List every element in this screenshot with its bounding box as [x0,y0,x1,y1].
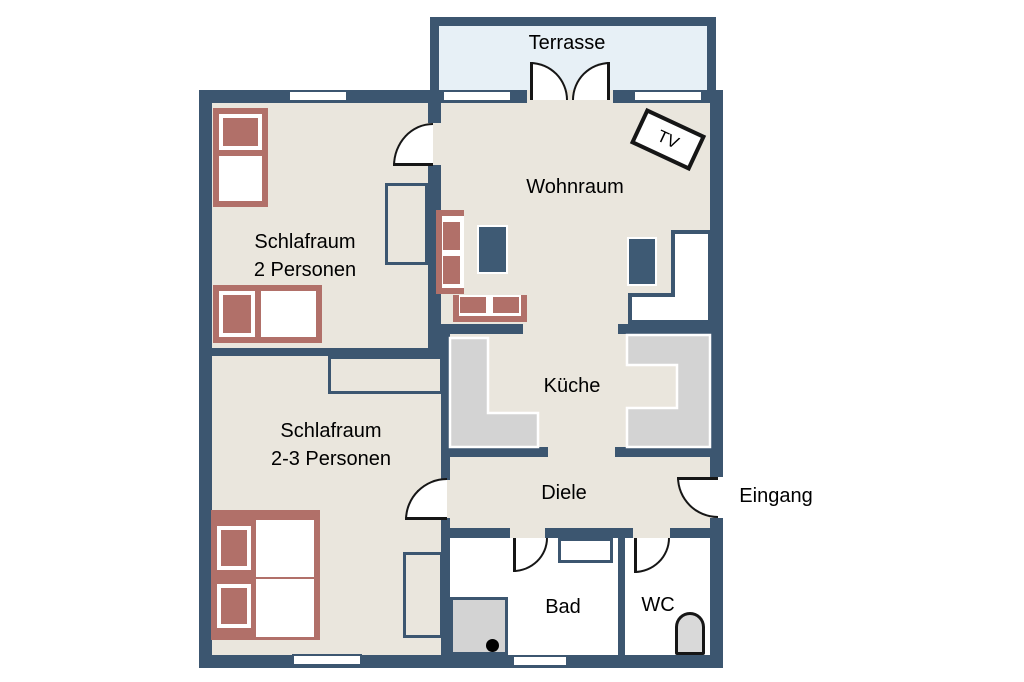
window-schlafraum2 [292,654,362,666]
wardrobe-schlafraum2-top [328,356,443,394]
terrace-wall-top [430,17,716,26]
pillow [217,584,251,628]
shower [450,597,508,655]
wall-bottom [199,655,723,668]
label-bad: Bad [545,593,581,621]
terrace-wall-left [430,17,439,90]
opening-wohnraum-kueche [523,324,618,334]
mattress [261,291,316,337]
sofa-cushion [460,297,486,313]
window-bad [512,655,568,667]
sofa-horizontal [453,295,527,322]
label-terrasse: Terrasse [529,29,606,57]
single-bed-vertical [213,108,268,207]
window-terrasse-right [633,90,703,102]
single-bed-horizontal [213,285,322,343]
label-schlafraum1: Schlafraum 2 Personen [254,228,356,284]
wall-kueche-diele-left [441,447,548,457]
label-schlafraum2-line1: Schlafraum [271,417,391,445]
wall-diele-bad-left [441,528,510,538]
label-wohnraum: Wohnraum [526,173,623,201]
doorway-wc [633,528,670,538]
terrace-wall-right [707,17,716,90]
label-diele: Diele [541,479,587,507]
sofa-cushion [493,297,519,313]
wall-schlafraum1-wohnraum-upper [428,103,441,123]
mattress [256,579,314,637]
sink [558,538,613,563]
wardrobe-schlafraum2-right [403,552,443,638]
mattress [256,520,314,577]
label-schlafraum2: Schlafraum 2-3 Personen [271,417,391,473]
coffee-table [477,225,508,274]
wall-kueche-diele-right [615,447,723,457]
shower-drain-icon [486,639,499,652]
floor-plan: TV Terrasse Wohnraum Schlafraum 2 Person… [0,0,1024,682]
mattress [219,156,262,201]
wall-between-bedrooms [199,348,450,356]
label-kueche: Küche [544,372,601,400]
wall-wohnraum-kueche-left [437,324,523,334]
sofa-cushion [443,222,460,250]
pillow [217,526,251,570]
wardrobe-schlafraum1 [385,183,428,265]
label-schlafraum1-line2: 2 Personen [254,256,356,284]
label-eingang: Eingang [739,482,812,510]
double-bed [211,510,320,640]
wall-diele-bad-mid [545,528,633,538]
label-schlafraum2-line2: 2-3 Personen [271,445,391,473]
wall-right [710,90,723,668]
wall-diele-wc-right [670,528,723,538]
window-schlafraum1 [288,90,348,102]
window-terrasse-left [442,90,512,102]
sofa-cushion [443,256,460,284]
pillow [219,291,255,337]
tv-label: TV [654,126,682,153]
sofa-vertical [436,210,464,294]
wall-wohnraum-kueche-right [618,324,723,334]
toilet [675,612,705,655]
pillow [219,114,262,150]
opening-kueche-diele [548,447,615,457]
label-schlafraum1-line1: Schlafraum [254,228,356,256]
dining-table [627,237,657,286]
label-wc: WC [641,591,674,619]
doorway-bad [510,528,545,538]
wall-bad-wc [618,538,625,655]
